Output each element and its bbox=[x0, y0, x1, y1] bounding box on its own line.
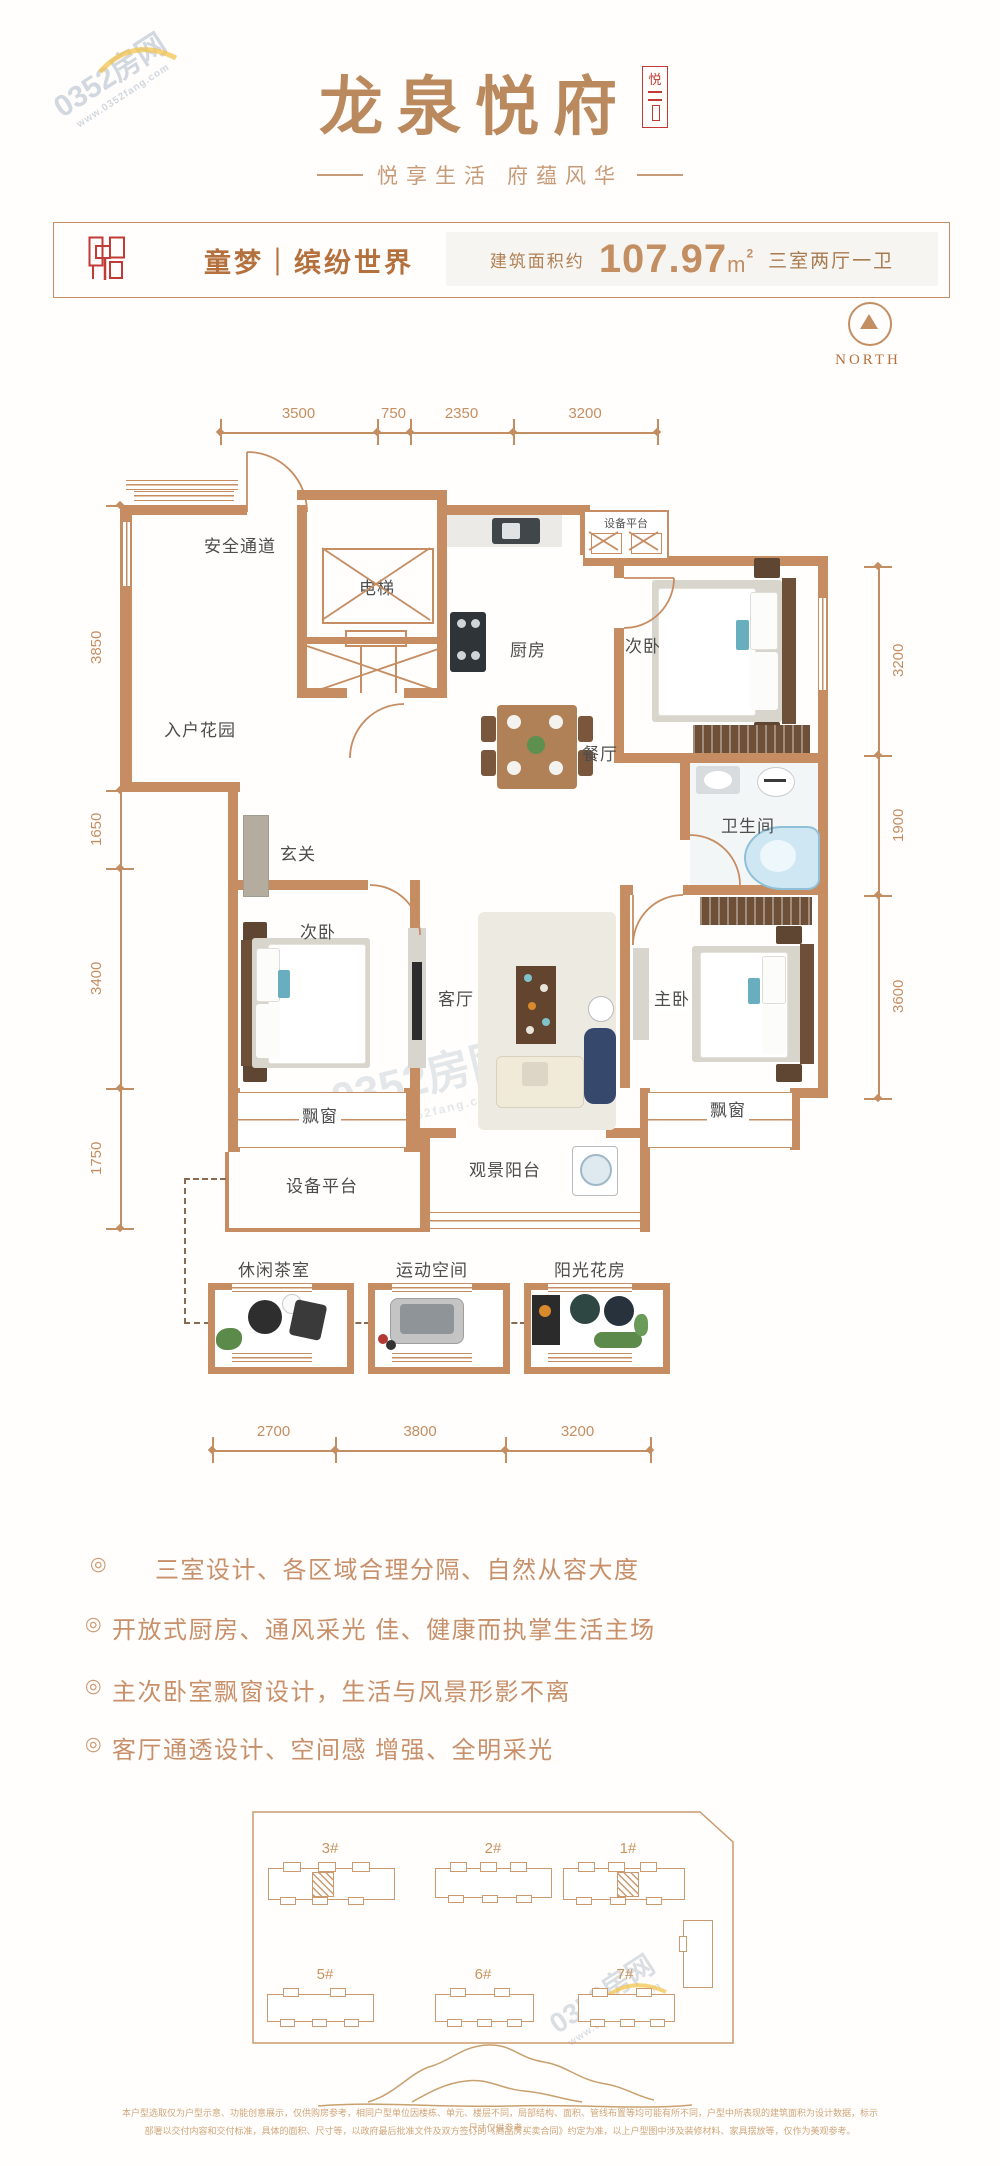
bedroom-top-window bbox=[818, 598, 827, 690]
building-label-7: 7# bbox=[617, 1966, 634, 1983]
building-1-unit bbox=[617, 1872, 639, 1897]
living-shelf bbox=[516, 966, 556, 1044]
dining-chair bbox=[481, 716, 496, 742]
room-label-bedroom-top: 次卧 bbox=[625, 632, 661, 657]
dim-left-1: 3850 bbox=[88, 505, 105, 790]
room-label-bath: 卫生间 bbox=[721, 812, 775, 837]
toilet bbox=[757, 767, 795, 797]
building-5 bbox=[267, 1994, 374, 2022]
room-label-living: 客厅 bbox=[438, 985, 474, 1010]
building-label-6: 6# bbox=[475, 1966, 492, 1983]
sun-plants bbox=[594, 1332, 642, 1348]
building-label-1: 1# bbox=[620, 1840, 637, 1857]
building-2 bbox=[435, 1868, 552, 1898]
annex-label-sun: 阳光花房 bbox=[554, 1256, 626, 1281]
room-label-equip-top: 设备平台 bbox=[604, 515, 648, 531]
exterior-sill-2 bbox=[134, 491, 234, 501]
dining-plant bbox=[527, 736, 545, 754]
master-dresser bbox=[633, 948, 649, 1040]
dim-bottom-1: 2700 bbox=[212, 1423, 335, 1440]
dim-left-3: 3400 bbox=[88, 868, 105, 1088]
side-table bbox=[588, 996, 614, 1022]
tea-table bbox=[248, 1300, 282, 1334]
armchair bbox=[584, 1028, 616, 1104]
building-label-2: 2# bbox=[485, 1840, 502, 1857]
bedroom-top-closet bbox=[693, 725, 810, 753]
room-label-foyer: 玄关 bbox=[280, 840, 316, 865]
exterior-sill-1 bbox=[126, 480, 238, 490]
dim-right-2: 1900 bbox=[890, 755, 907, 895]
feature-item: ◎ 主次卧室飘窗设计，生活与风景形影不离 bbox=[0, 1672, 1000, 1704]
room-label-elevator: 电梯 bbox=[356, 574, 398, 599]
hanging-chair bbox=[570, 1294, 600, 1324]
feature-item: ◎ 三室设计、各区域合理分隔、自然从容大度 bbox=[0, 1550, 1000, 1582]
dim-right-3: 3600 bbox=[890, 895, 907, 1098]
stove bbox=[450, 612, 486, 672]
room-label-kitchen: 厨房 bbox=[510, 636, 546, 661]
equipment-platform-top-box: 设备平台 bbox=[583, 510, 669, 560]
room-label-master: 主卧 bbox=[652, 985, 692, 1010]
poster-page: 0352房网 www.0352fang.com 0352房网 www.0352f… bbox=[0, 0, 1000, 2166]
foyer-cabinet bbox=[243, 815, 269, 897]
building-tall bbox=[683, 1920, 713, 1988]
annex-label-sport: 运动空间 bbox=[396, 1256, 468, 1281]
building-label-5: 5# bbox=[317, 1966, 334, 1983]
garden-window bbox=[122, 522, 131, 586]
tv bbox=[412, 962, 422, 1040]
balcony-window bbox=[430, 1212, 640, 1229]
room-label-balcony: 观景阳台 bbox=[469, 1156, 541, 1181]
room-label-bay-right: 飘窗 bbox=[707, 1096, 749, 1121]
building-label-3: 3# bbox=[322, 1840, 339, 1857]
annex-label-tea: 休闲茶室 bbox=[238, 1256, 310, 1281]
dim-top-3: 2350 bbox=[410, 405, 513, 422]
elevator-counterweight bbox=[345, 630, 407, 647]
feature-item: ◎ 开放式厨房、通风采光 佳、健康而执掌生活主场 bbox=[0, 1610, 1000, 1642]
dim-left-4: 1750 bbox=[88, 1088, 105, 1228]
room-label-safety: 安全通道 bbox=[204, 532, 276, 557]
sun-shelf bbox=[532, 1295, 560, 1345]
dim-top-4: 3200 bbox=[513, 405, 657, 422]
building-6 bbox=[435, 1994, 534, 2022]
tea-plant bbox=[216, 1328, 242, 1350]
dim-bottom-2: 3800 bbox=[335, 1423, 505, 1440]
master-wardrobe bbox=[700, 897, 812, 925]
building-7 bbox=[578, 1994, 675, 2022]
room-label-equip-bottom: 设备平台 bbox=[286, 1172, 358, 1197]
room-label-bedroom-left: 次卧 bbox=[300, 918, 336, 943]
dim-bottom-3: 3200 bbox=[505, 1423, 650, 1440]
building-3-unit bbox=[312, 1872, 334, 1897]
feature-item: ◎ 客厅通透设计、空间感 增强、全明采光 bbox=[0, 1730, 1000, 1762]
room-label-garden: 入户花园 bbox=[164, 716, 236, 741]
dim-top-1: 3500 bbox=[220, 405, 377, 422]
room-label-dining: 餐厅 bbox=[582, 740, 618, 765]
dim-left-2: 1650 bbox=[88, 790, 105, 868]
disclaimer-line-2: 部署以交付内容和交付标准，具体的面积、尺寸等，以政府最后批准文件及双方签订的《商… bbox=[120, 2124, 880, 2139]
dim-right-1: 3200 bbox=[890, 566, 907, 755]
room-label-bay-left: 飘窗 bbox=[299, 1102, 341, 1127]
